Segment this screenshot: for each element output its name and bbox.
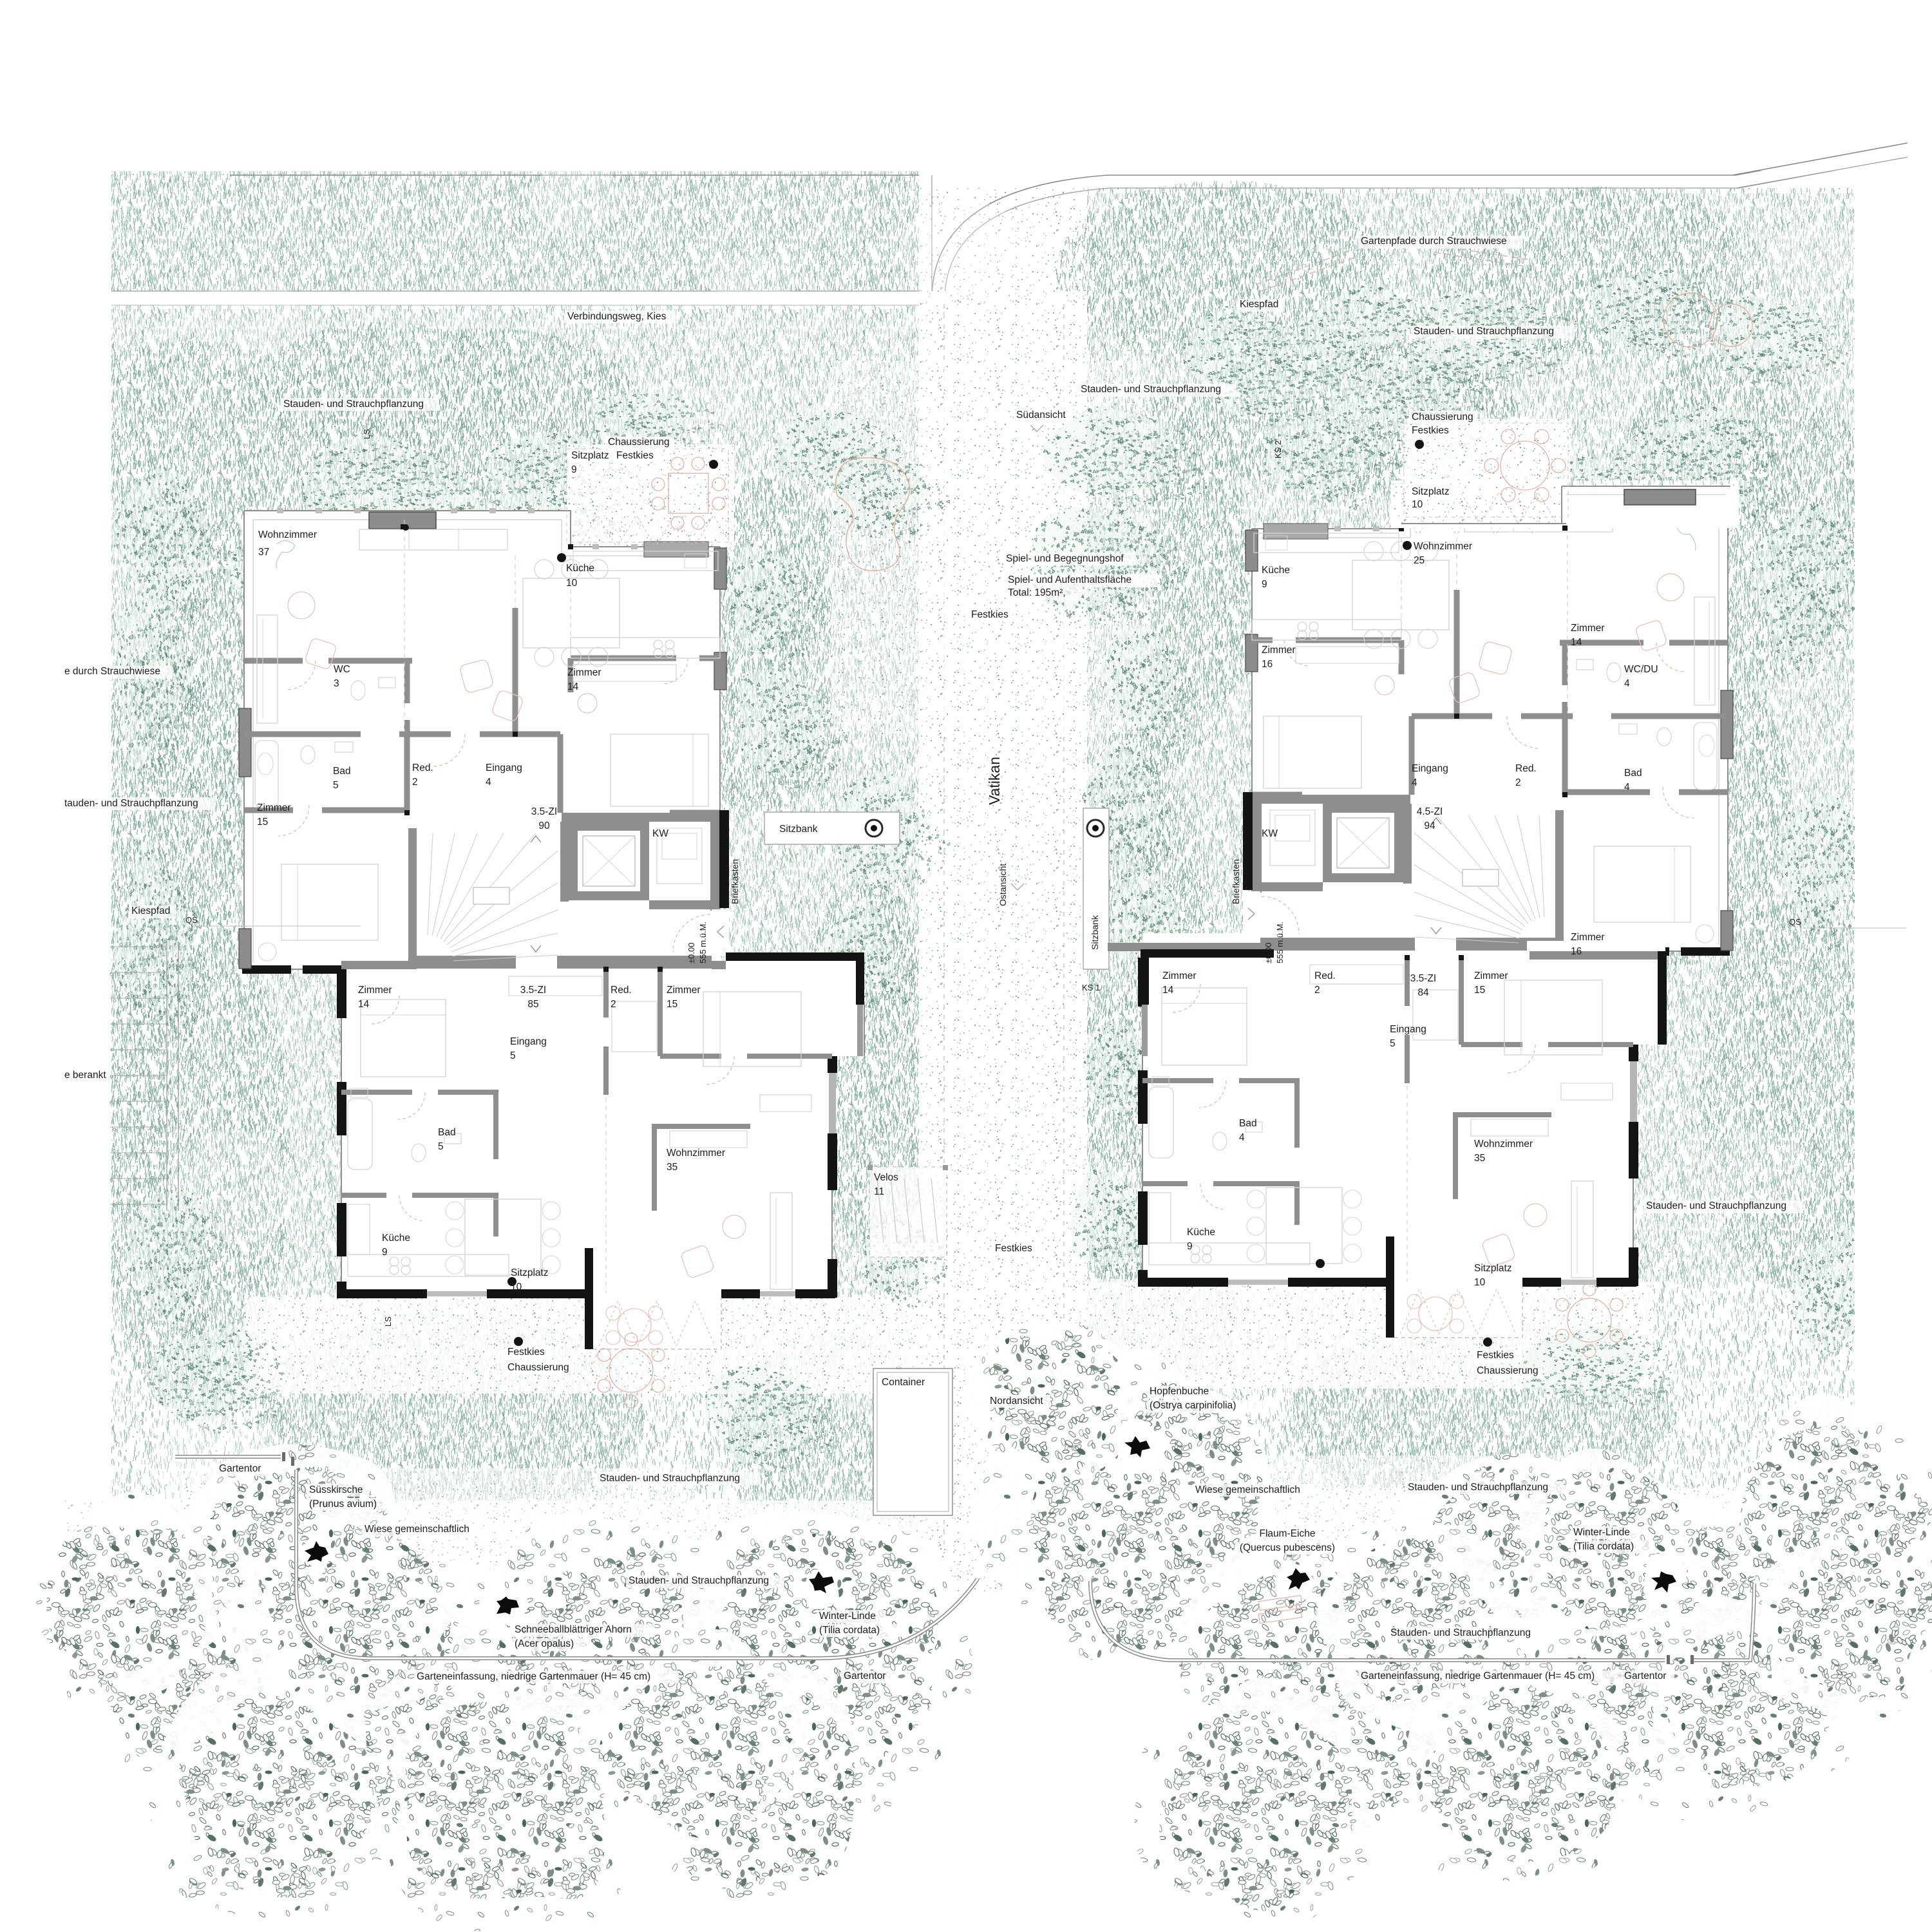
svg-text:KS 2: KS 2 bbox=[1273, 440, 1283, 459]
svg-text:Kiespfad: Kiespfad bbox=[131, 905, 170, 916]
svg-text:Spiel- und Aufenthaltsfläche: Spiel- und Aufenthaltsfläche bbox=[1008, 574, 1132, 585]
svg-text:Wohnzimmer: Wohnzimmer bbox=[667, 1148, 725, 1159]
svg-text:(Acer opalus): (Acer opalus) bbox=[515, 1638, 574, 1649]
svg-text:Küche: Küche bbox=[382, 1233, 410, 1244]
svg-text:LS: LS bbox=[362, 429, 372, 439]
svg-text:Bad: Bad bbox=[333, 766, 351, 777]
svg-text:Schneeballblättriger Ahorn: Schneeballblättriger Ahorn bbox=[515, 1624, 632, 1635]
svg-text:Hopfenbuche: Hopfenbuche bbox=[1150, 1386, 1209, 1397]
svg-text:Stauden- und Strauchpflanzung: Stauden- und Strauchpflanzung bbox=[1081, 384, 1221, 395]
svg-text:Briefkasten: Briefkasten bbox=[730, 859, 740, 904]
svg-text:Wiese gemeinschaftlich: Wiese gemeinschaftlich bbox=[1195, 1484, 1300, 1495]
svg-text:11: 11 bbox=[874, 1186, 884, 1197]
svg-text:WC: WC bbox=[334, 664, 350, 675]
svg-text:e berankt: e berankt bbox=[64, 1070, 106, 1081]
svg-text:35: 35 bbox=[1474, 1153, 1485, 1164]
svg-text:3.5-ZI: 3.5-ZI bbox=[520, 985, 546, 996]
svg-text:Stauden- und Strauchpflanzung: Stauden- und Strauchpflanzung bbox=[1408, 1482, 1548, 1493]
svg-text:84: 84 bbox=[1417, 987, 1429, 998]
svg-text:15: 15 bbox=[667, 999, 677, 1010]
svg-text:KS 1: KS 1 bbox=[1082, 983, 1100, 992]
svg-text:2: 2 bbox=[1515, 777, 1521, 788]
svg-text:14: 14 bbox=[1162, 985, 1174, 996]
svg-text:9: 9 bbox=[1262, 579, 1267, 590]
svg-text:Stauden- und Strauchpflanzung: Stauden- und Strauchpflanzung bbox=[1646, 1200, 1786, 1211]
svg-text:10: 10 bbox=[1412, 499, 1423, 510]
svg-text:14: 14 bbox=[358, 999, 370, 1010]
svg-text:Zimmer: Zimmer bbox=[1474, 971, 1508, 981]
svg-text:Stauden- und Strauchpflanzung: Stauden- und Strauchpflanzung bbox=[283, 399, 424, 410]
svg-text:Gartentor: Gartentor bbox=[844, 1671, 885, 1681]
svg-text:16: 16 bbox=[1262, 659, 1273, 670]
svg-text:Stauden- und Strauchpflanzung: Stauden- und Strauchpflanzung bbox=[629, 1575, 769, 1586]
svg-text:90: 90 bbox=[538, 820, 550, 831]
svg-text:QS: QS bbox=[185, 915, 198, 925]
svg-text:(Quercus pubescens): (Quercus pubescens) bbox=[1240, 1542, 1335, 1553]
svg-text:Kiespfad: Kiespfad bbox=[1240, 299, 1278, 310]
svg-text:Wiese gemeinschaftlich: Wiese gemeinschaftlich bbox=[365, 1524, 469, 1535]
svg-text:Sitzbank: Sitzbank bbox=[1090, 914, 1100, 950]
svg-text:Bad: Bad bbox=[1239, 1118, 1257, 1129]
svg-text:4: 4 bbox=[1412, 777, 1417, 788]
svg-text:Chaussierung: Chaussierung bbox=[507, 1362, 569, 1373]
svg-text:(Tilia cordata): (Tilia cordata) bbox=[819, 1625, 880, 1636]
svg-text:(Ostrya carpinifolia): (Ostrya carpinifolia) bbox=[1150, 1400, 1236, 1411]
svg-text:Zimmer: Zimmer bbox=[1262, 645, 1296, 656]
svg-text:WC/DU: WC/DU bbox=[1624, 664, 1658, 675]
svg-text:Container: Container bbox=[882, 1377, 925, 1388]
svg-text:±0.00: ±0.00 bbox=[687, 943, 696, 963]
svg-text:Sitzplatz: Sitzplatz bbox=[1474, 1263, 1512, 1274]
svg-text:Wohnzimmer: Wohnzimmer bbox=[258, 529, 317, 540]
svg-text:Spiel- und Begegnungshof: Spiel- und Begegnungshof bbox=[1006, 553, 1124, 564]
svg-text:Velos: Velos bbox=[874, 1172, 898, 1183]
svg-text:Südansicht: Südansicht bbox=[1016, 410, 1066, 421]
svg-text:Festkies: Festkies bbox=[971, 609, 1009, 620]
svg-text:4: 4 bbox=[486, 777, 491, 788]
svg-text:15: 15 bbox=[257, 817, 268, 828]
svg-text:14: 14 bbox=[1571, 637, 1582, 648]
svg-text:Chaussierung: Chaussierung bbox=[608, 437, 670, 448]
svg-text:Wohnzimmer: Wohnzimmer bbox=[1474, 1139, 1533, 1150]
svg-text:Nordansicht: Nordansicht bbox=[990, 1396, 1043, 1406]
svg-text:2: 2 bbox=[412, 777, 418, 788]
svg-text:QS: QS bbox=[1789, 917, 1801, 927]
svg-text:5: 5 bbox=[510, 1050, 516, 1061]
svg-text:Flaum-Eiche: Flaum-Eiche bbox=[1260, 1528, 1316, 1539]
svg-text:16: 16 bbox=[1571, 946, 1582, 957]
svg-text:Chaussierung: Chaussierung bbox=[1412, 412, 1473, 422]
svg-text:Küche: Küche bbox=[1187, 1227, 1215, 1238]
svg-text:Red.: Red. bbox=[1314, 971, 1336, 981]
svg-text:Festkies: Festkies bbox=[1412, 425, 1449, 436]
svg-text:Garteneinfassung, niedrige Gar: Garteneinfassung, niedrige Gartenmauer (… bbox=[417, 1671, 650, 1682]
svg-text:Festkies: Festkies bbox=[995, 1243, 1032, 1254]
svg-text:Red.: Red. bbox=[412, 762, 433, 773]
svg-text:Bad: Bad bbox=[1624, 768, 1642, 779]
svg-text:37: 37 bbox=[258, 547, 269, 558]
svg-text:94: 94 bbox=[1424, 820, 1435, 831]
svg-text:Stauden- und Strauchpflanzung: Stauden- und Strauchpflanzung bbox=[1414, 326, 1554, 337]
svg-text:35: 35 bbox=[667, 1162, 677, 1173]
svg-text:10: 10 bbox=[1474, 1277, 1486, 1288]
svg-text:3.5-ZI: 3.5-ZI bbox=[1410, 973, 1436, 984]
svg-text:14: 14 bbox=[567, 681, 579, 692]
svg-text:5: 5 bbox=[1390, 1038, 1396, 1049]
svg-text:Zimmer: Zimmer bbox=[358, 985, 392, 996]
svg-text:4.5-ZI: 4.5-ZI bbox=[1417, 806, 1443, 817]
svg-text:9: 9 bbox=[382, 1247, 388, 1258]
svg-text:10: 10 bbox=[511, 1282, 522, 1293]
svg-text:Garteneinfassung, niedrige Gar: Garteneinfassung, niedrige Gartenmauer (… bbox=[1361, 1671, 1595, 1681]
svg-text:4: 4 bbox=[1624, 678, 1630, 689]
svg-text:5: 5 bbox=[438, 1141, 444, 1152]
svg-text:85: 85 bbox=[527, 999, 538, 1010]
svg-text:Eingang: Eingang bbox=[1412, 763, 1448, 774]
svg-text:Gartentor: Gartentor bbox=[219, 1463, 261, 1474]
svg-text:Gartenpfade durch Strauchwiese: Gartenpfade durch Strauchwiese bbox=[1361, 236, 1507, 247]
svg-text:Eingang: Eingang bbox=[1390, 1024, 1426, 1035]
svg-text:Red.: Red. bbox=[611, 985, 632, 996]
svg-text:Verbindungsweg, Kies: Verbindungsweg, Kies bbox=[567, 311, 667, 322]
svg-text:Chaussierung: Chaussierung bbox=[1477, 1365, 1539, 1376]
svg-text:Festkies: Festkies bbox=[616, 450, 654, 461]
svg-text:Küche: Küche bbox=[566, 563, 594, 574]
svg-text:15: 15 bbox=[1474, 985, 1485, 996]
svg-text:Zimmer: Zimmer bbox=[1571, 623, 1605, 634]
svg-text:Stauden- und Strauchpflanzung: Stauden- und Strauchpflanzung bbox=[600, 1473, 740, 1484]
svg-text:555 m.ü.M.: 555 m.ü.M. bbox=[698, 922, 708, 963]
svg-text:Festkies: Festkies bbox=[1477, 1350, 1514, 1361]
svg-text:Zimmer: Zimmer bbox=[567, 667, 601, 678]
svg-text:Winter-Linde: Winter-Linde bbox=[819, 1611, 876, 1622]
svg-text:Wohnzimmer: Wohnzimmer bbox=[1414, 541, 1472, 552]
svg-text:Total: 195m²,: Total: 195m², bbox=[1008, 587, 1066, 598]
svg-text:Stauden- und Strauchpflanzung: Stauden- und Strauchpflanzung bbox=[1390, 1627, 1531, 1638]
svg-text:Zimmer: Zimmer bbox=[1162, 971, 1197, 981]
svg-text:Eingang: Eingang bbox=[510, 1036, 547, 1047]
svg-text:2: 2 bbox=[611, 999, 616, 1010]
svg-text:Sitzplatz: Sitzplatz bbox=[571, 450, 609, 461]
svg-text:Red.: Red. bbox=[1515, 763, 1537, 774]
svg-text:Zimmer: Zimmer bbox=[257, 802, 291, 813]
svg-text:3: 3 bbox=[334, 678, 339, 689]
svg-text:Sitzbank: Sitzbank bbox=[779, 824, 818, 835]
svg-text:5: 5 bbox=[333, 780, 339, 791]
svg-text:Sitzplatz: Sitzplatz bbox=[1412, 486, 1450, 497]
svg-text:LS: LS bbox=[383, 1316, 393, 1327]
svg-text:Gartentor: Gartentor bbox=[1624, 1671, 1666, 1681]
svg-text:4: 4 bbox=[1239, 1132, 1245, 1143]
svg-text:9: 9 bbox=[571, 464, 577, 475]
svg-text:9: 9 bbox=[1187, 1241, 1193, 1252]
svg-text:Festkies: Festkies bbox=[507, 1347, 545, 1358]
svg-text:Zimmer: Zimmer bbox=[667, 985, 701, 996]
svg-text:Winter-Linde: Winter-Linde bbox=[1573, 1527, 1630, 1538]
svg-text:±0.00: ±0.00 bbox=[1264, 943, 1273, 963]
svg-text:Süsskirsche: Süsskirsche bbox=[309, 1484, 363, 1495]
svg-text:tauden- und Strauchpflanzung: tauden- und Strauchpflanzung bbox=[64, 798, 198, 809]
svg-text:KW: KW bbox=[652, 828, 668, 839]
svg-text:3.5-ZI: 3.5-ZI bbox=[531, 806, 557, 817]
svg-text:4: 4 bbox=[1624, 782, 1630, 793]
svg-text:(Tilia cordata): (Tilia cordata) bbox=[1573, 1541, 1634, 1552]
svg-text:Bad: Bad bbox=[438, 1127, 456, 1138]
svg-text:e durch Strauchwiese: e durch Strauchwiese bbox=[64, 666, 160, 677]
svg-text:Sitzplatz: Sitzplatz bbox=[511, 1267, 549, 1278]
svg-text:Briefkasten: Briefkasten bbox=[1231, 859, 1241, 904]
svg-text:Zimmer: Zimmer bbox=[1571, 932, 1605, 943]
svg-text:Vatikan: Vatikan bbox=[986, 757, 1003, 805]
svg-text:25: 25 bbox=[1414, 555, 1425, 566]
svg-text:Küche: Küche bbox=[1262, 565, 1290, 576]
svg-text:(Prunus avium): (Prunus avium) bbox=[309, 1499, 377, 1510]
svg-text:555 m.ü.M.: 555 m.ü.M. bbox=[1275, 922, 1285, 963]
svg-text:2: 2 bbox=[1314, 985, 1320, 996]
svg-text:KW: KW bbox=[1262, 828, 1278, 839]
svg-text:Eingang: Eingang bbox=[486, 762, 522, 773]
svg-text:10: 10 bbox=[566, 578, 578, 589]
svg-text:Ostansicht: Ostansicht bbox=[998, 864, 1008, 906]
